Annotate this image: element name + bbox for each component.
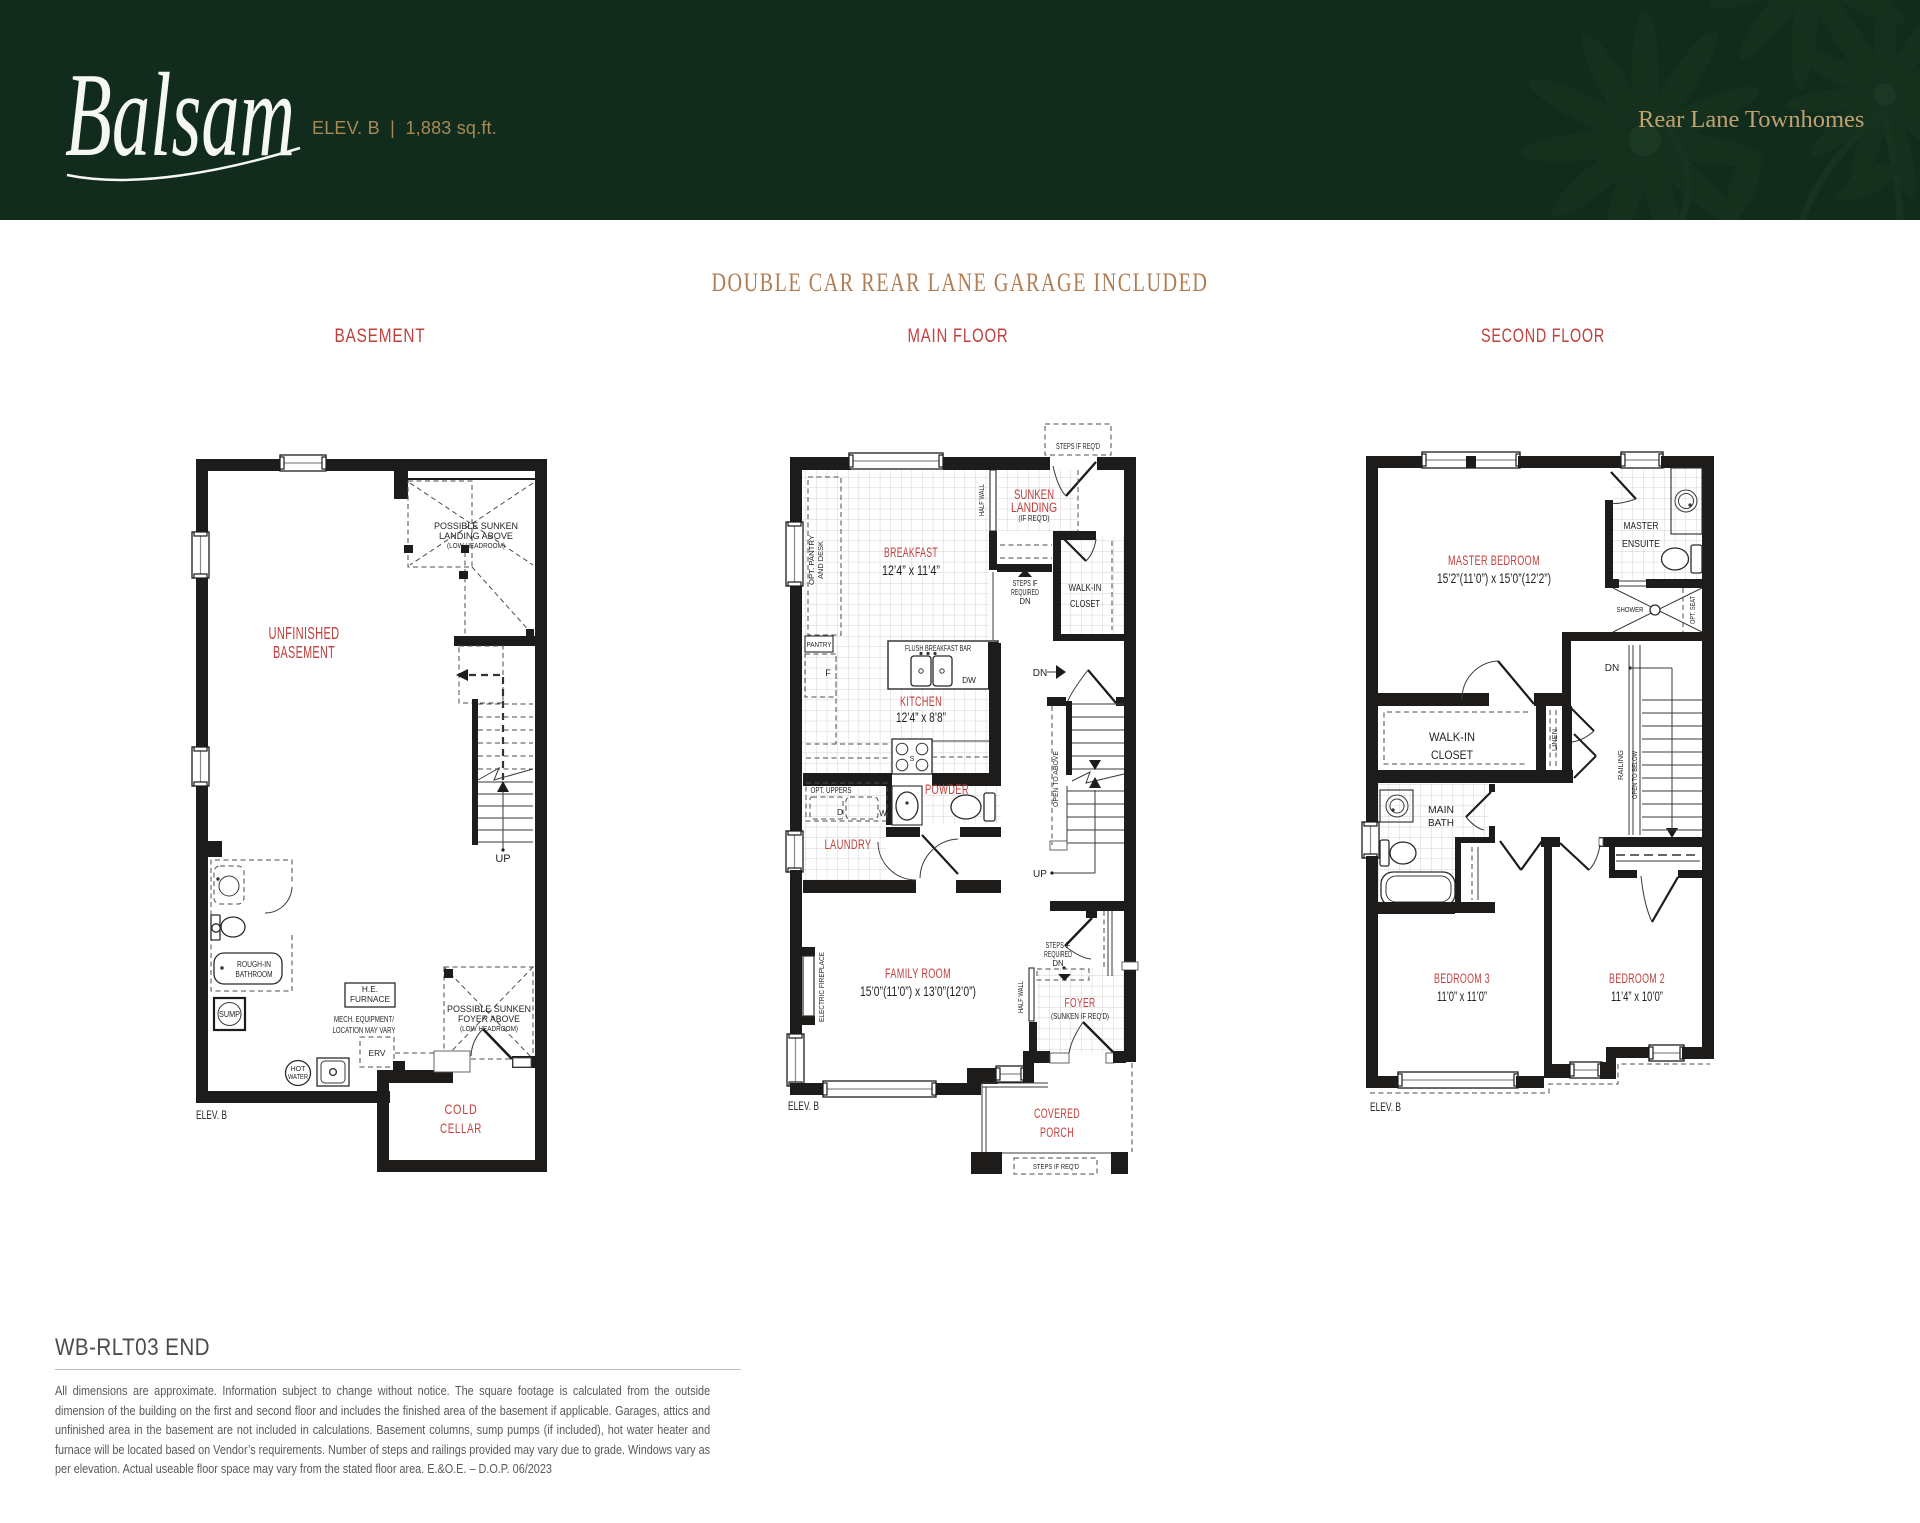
svg-text:KITCHEN: KITCHEN (900, 694, 942, 709)
svg-text:MAIN: MAIN (1428, 804, 1454, 816)
svg-text:FOYER ABOVE: FOYER ABOVE (458, 1014, 520, 1024)
svg-text:BATHROOM: BATHROOM (236, 969, 273, 979)
svg-text:(LOW HEADROOM): (LOW HEADROOM) (460, 1024, 518, 1033)
svg-text:DN: DN (1052, 959, 1063, 968)
svg-text:OPT. PANTRY: OPT. PANTRY (807, 535, 816, 585)
svg-text:LINEN: LINEN (1550, 729, 1559, 751)
svg-text:ROUGH-IN: ROUGH-IN (237, 959, 271, 969)
svg-text:MECH. EQUIPMENT/: MECH. EQUIPMENT/ (334, 1014, 394, 1024)
svg-text:BEDROOM 2: BEDROOM 2 (1609, 971, 1665, 986)
svg-text:15’0”(11’0”) x 13’0”(12’0”): 15’0”(11’0”) x 13’0”(12’0”) (860, 984, 976, 999)
svg-text:OPT. SEAT: OPT. SEAT (1690, 595, 1697, 624)
svg-text:HALF WALL: HALF WALL (977, 484, 986, 516)
svg-text:SHOWER: SHOWER (1617, 605, 1644, 614)
svg-text:OPT. UPPERS: OPT. UPPERS (811, 786, 852, 795)
svg-text:OPEN TO ABOVE: OPEN TO ABOVE (1051, 751, 1060, 807)
svg-text:(LOW HEADROOM): (LOW HEADROOM) (447, 541, 505, 550)
svg-text:SUMP: SUMP (219, 1010, 240, 1019)
svg-text:RAILING: RAILING (1616, 750, 1625, 780)
svg-text:UP: UP (495, 853, 510, 865)
svg-text:REQUIRED: REQUIRED (1011, 588, 1039, 597)
svg-text:BREAKFAST: BREAKFAST (884, 545, 938, 560)
svg-text:CELLAR: CELLAR (440, 1120, 482, 1136)
svg-text:FAMILY ROOM: FAMILY ROOM (885, 966, 951, 981)
svg-text:S: S (910, 756, 915, 763)
svg-text:DN: DN (1033, 668, 1047, 679)
svg-text:UP: UP (1033, 869, 1047, 880)
svg-text:ELECTRIC FIREPLACE: ELECTRIC FIREPLACE (817, 952, 826, 1022)
svg-text:WATER: WATER (288, 1074, 308, 1081)
svg-text:MASTER: MASTER (1624, 520, 1659, 532)
svg-text:11’0” x 11’0”: 11’0” x 11’0” (1437, 989, 1487, 1004)
svg-text:COVERED: COVERED (1034, 1106, 1080, 1121)
svg-text:12’4” x 8’8”: 12’4” x 8’8” (896, 710, 946, 725)
svg-text:ENSUITE: ENSUITE (1622, 538, 1660, 550)
svg-text:DW: DW (962, 675, 976, 685)
svg-text:(IF REQ'D): (IF REQ'D) (1019, 514, 1050, 523)
svg-text:POSSIBLE SUNKEN: POSSIBLE SUNKEN (447, 1004, 531, 1014)
svg-text:OPEN TO BELOW: OPEN TO BELOW (1632, 751, 1639, 799)
svg-text:H.E.: H.E. (362, 984, 378, 994)
svg-text:ELEV. B: ELEV. B (196, 1110, 227, 1122)
svg-text:DN: DN (1019, 597, 1030, 606)
svg-text:(SUNKEN IF REQ'D): (SUNKEN IF REQ'D) (1051, 1012, 1109, 1021)
svg-text:CLOSET: CLOSET (1431, 750, 1473, 762)
svg-text:ELEV. B: ELEV. B (1370, 1102, 1401, 1114)
svg-text:UNFINISHED: UNFINISHED (269, 623, 340, 643)
svg-text:11’4” x 10’0”: 11’4” x 10’0” (1611, 989, 1663, 1004)
svg-text:LANDING: LANDING (1011, 500, 1057, 515)
svg-text:COLD: COLD (445, 1101, 478, 1117)
svg-text:PORCH: PORCH (1040, 1125, 1074, 1140)
svg-text:WALK-IN: WALK-IN (1069, 582, 1102, 594)
svg-text:DN: DN (1605, 663, 1619, 674)
svg-text:LANDING ABOVE: LANDING ABOVE (439, 531, 513, 541)
svg-text:LAUNDRY: LAUNDRY (825, 837, 872, 852)
svg-text:ERV: ERV (369, 1048, 386, 1058)
svg-text:LOCATION MAY VARY: LOCATION MAY VARY (333, 1025, 396, 1035)
svg-text:CLOSET: CLOSET (1070, 598, 1100, 610)
svg-text:FLUSH BREAKFAST BAR: FLUSH BREAKFAST BAR (905, 644, 971, 653)
svg-text:AND DESK: AND DESK (816, 541, 825, 579)
svg-text:15’2”(11’0”) x 15’0”(12’2”): 15’2”(11’0”) x 15’0”(12’2”) (1437, 571, 1551, 586)
svg-text:W: W (879, 808, 887, 818)
svg-text:ELEV. B: ELEV. B (788, 1101, 819, 1113)
svg-text:STEPS IF: STEPS IF (1013, 579, 1038, 588)
svg-text:FURNACE: FURNACE (350, 994, 390, 1004)
svg-text:STEPS IF REQ'D: STEPS IF REQ'D (1033, 1162, 1079, 1171)
svg-text:MASTER BEDROOM: MASTER BEDROOM (1448, 552, 1540, 568)
svg-text:WALK-IN: WALK-IN (1429, 732, 1475, 744)
svg-text:BATH: BATH (1428, 817, 1454, 829)
svg-text:BEDROOM 3: BEDROOM 3 (1434, 971, 1490, 986)
svg-text:REQUIRED: REQUIRED (1044, 950, 1072, 959)
svg-text:STEPS IF REQ'D: STEPS IF REQ'D (1056, 442, 1100, 451)
svg-text:PANTRY: PANTRY (807, 640, 832, 649)
svg-text:HOT: HOT (291, 1066, 307, 1073)
svg-text:D: D (837, 807, 843, 817)
svg-text:POSSIBLE SUNKEN: POSSIBLE SUNKEN (434, 521, 518, 531)
svg-text:HALF WALL: HALF WALL (1016, 981, 1025, 1013)
svg-text:12’4” x 11’4”: 12’4” x 11’4” (882, 563, 940, 578)
svg-text:F: F (825, 668, 831, 678)
svg-text:FOYER: FOYER (1065, 996, 1096, 1010)
svg-text:BASEMENT: BASEMENT (273, 642, 335, 662)
